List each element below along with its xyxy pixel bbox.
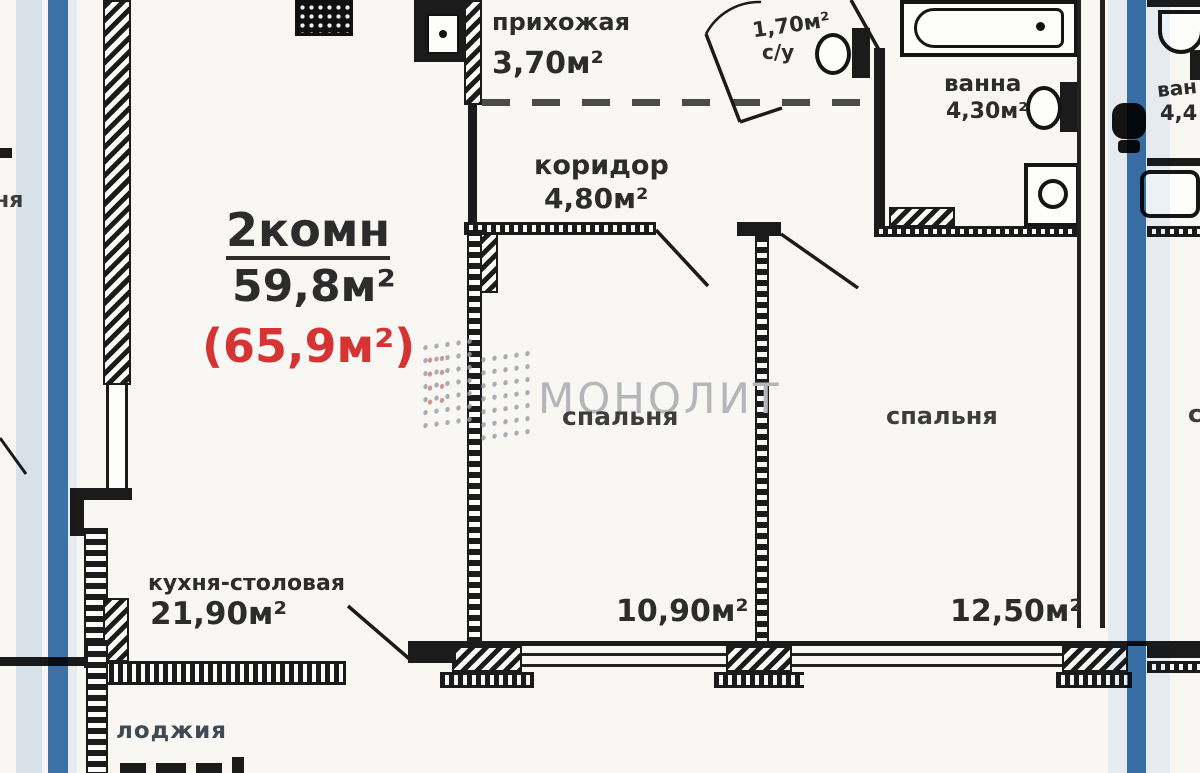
unit-living-area: 59,8м²	[232, 264, 396, 310]
unit-total-area: (65,9м²)	[202, 322, 415, 370]
bedroom1-area: 10,90м²	[616, 596, 749, 628]
hallway-area: 3,70м²	[492, 48, 604, 80]
door-leaf-entry	[706, 34, 740, 122]
bedroom2-area: 12,50м²	[950, 596, 1083, 628]
kitchen-area: 21,90м²	[150, 598, 287, 631]
clipped-text-fragment	[196, 763, 222, 773]
bath-name: ванна	[944, 72, 1021, 96]
floor-plan: МОНОЛИТ 2комн 59,8м² (65,9м²) прихожая 3…	[0, 0, 1200, 773]
bathtub-drain-icon	[1036, 22, 1045, 31]
kitchen-name: кухня-столовая	[148, 572, 345, 595]
left-stripe-halo	[16, 0, 42, 773]
bath-area: 4,30м²	[946, 100, 1028, 123]
unit-type-label: 2комн	[226, 206, 390, 260]
wc-name: с/у	[762, 42, 794, 63]
shaft-dot-icon	[439, 30, 447, 38]
clipped-text-fragment	[232, 757, 244, 773]
neighbor-bedroom-partial: сп	[1188, 400, 1200, 428]
left-stripe	[48, 0, 68, 773]
wall-wc-zigzag	[740, 108, 782, 122]
door-leaf-bedroom1	[656, 230, 708, 286]
bedroom1-name: спальня	[562, 402, 678, 431]
left-stripe-edge	[68, 0, 77, 773]
door-leaf-bedroom2	[781, 234, 858, 288]
wall-wc-diagonal	[851, 0, 879, 50]
corridor-name: коридор	[534, 152, 669, 180]
hallway-name: прихожая	[492, 10, 630, 35]
corridor-area: 4,80м²	[544, 184, 648, 213]
bedroom2-name: спальня	[886, 402, 998, 430]
clipped-text-fragment	[120, 763, 146, 773]
clipped-text-fragment	[156, 763, 186, 773]
right-stripe	[1127, 0, 1146, 773]
loggia-name: лоджия	[116, 718, 227, 744]
door-leaf-kitchen-loggia	[348, 606, 413, 662]
